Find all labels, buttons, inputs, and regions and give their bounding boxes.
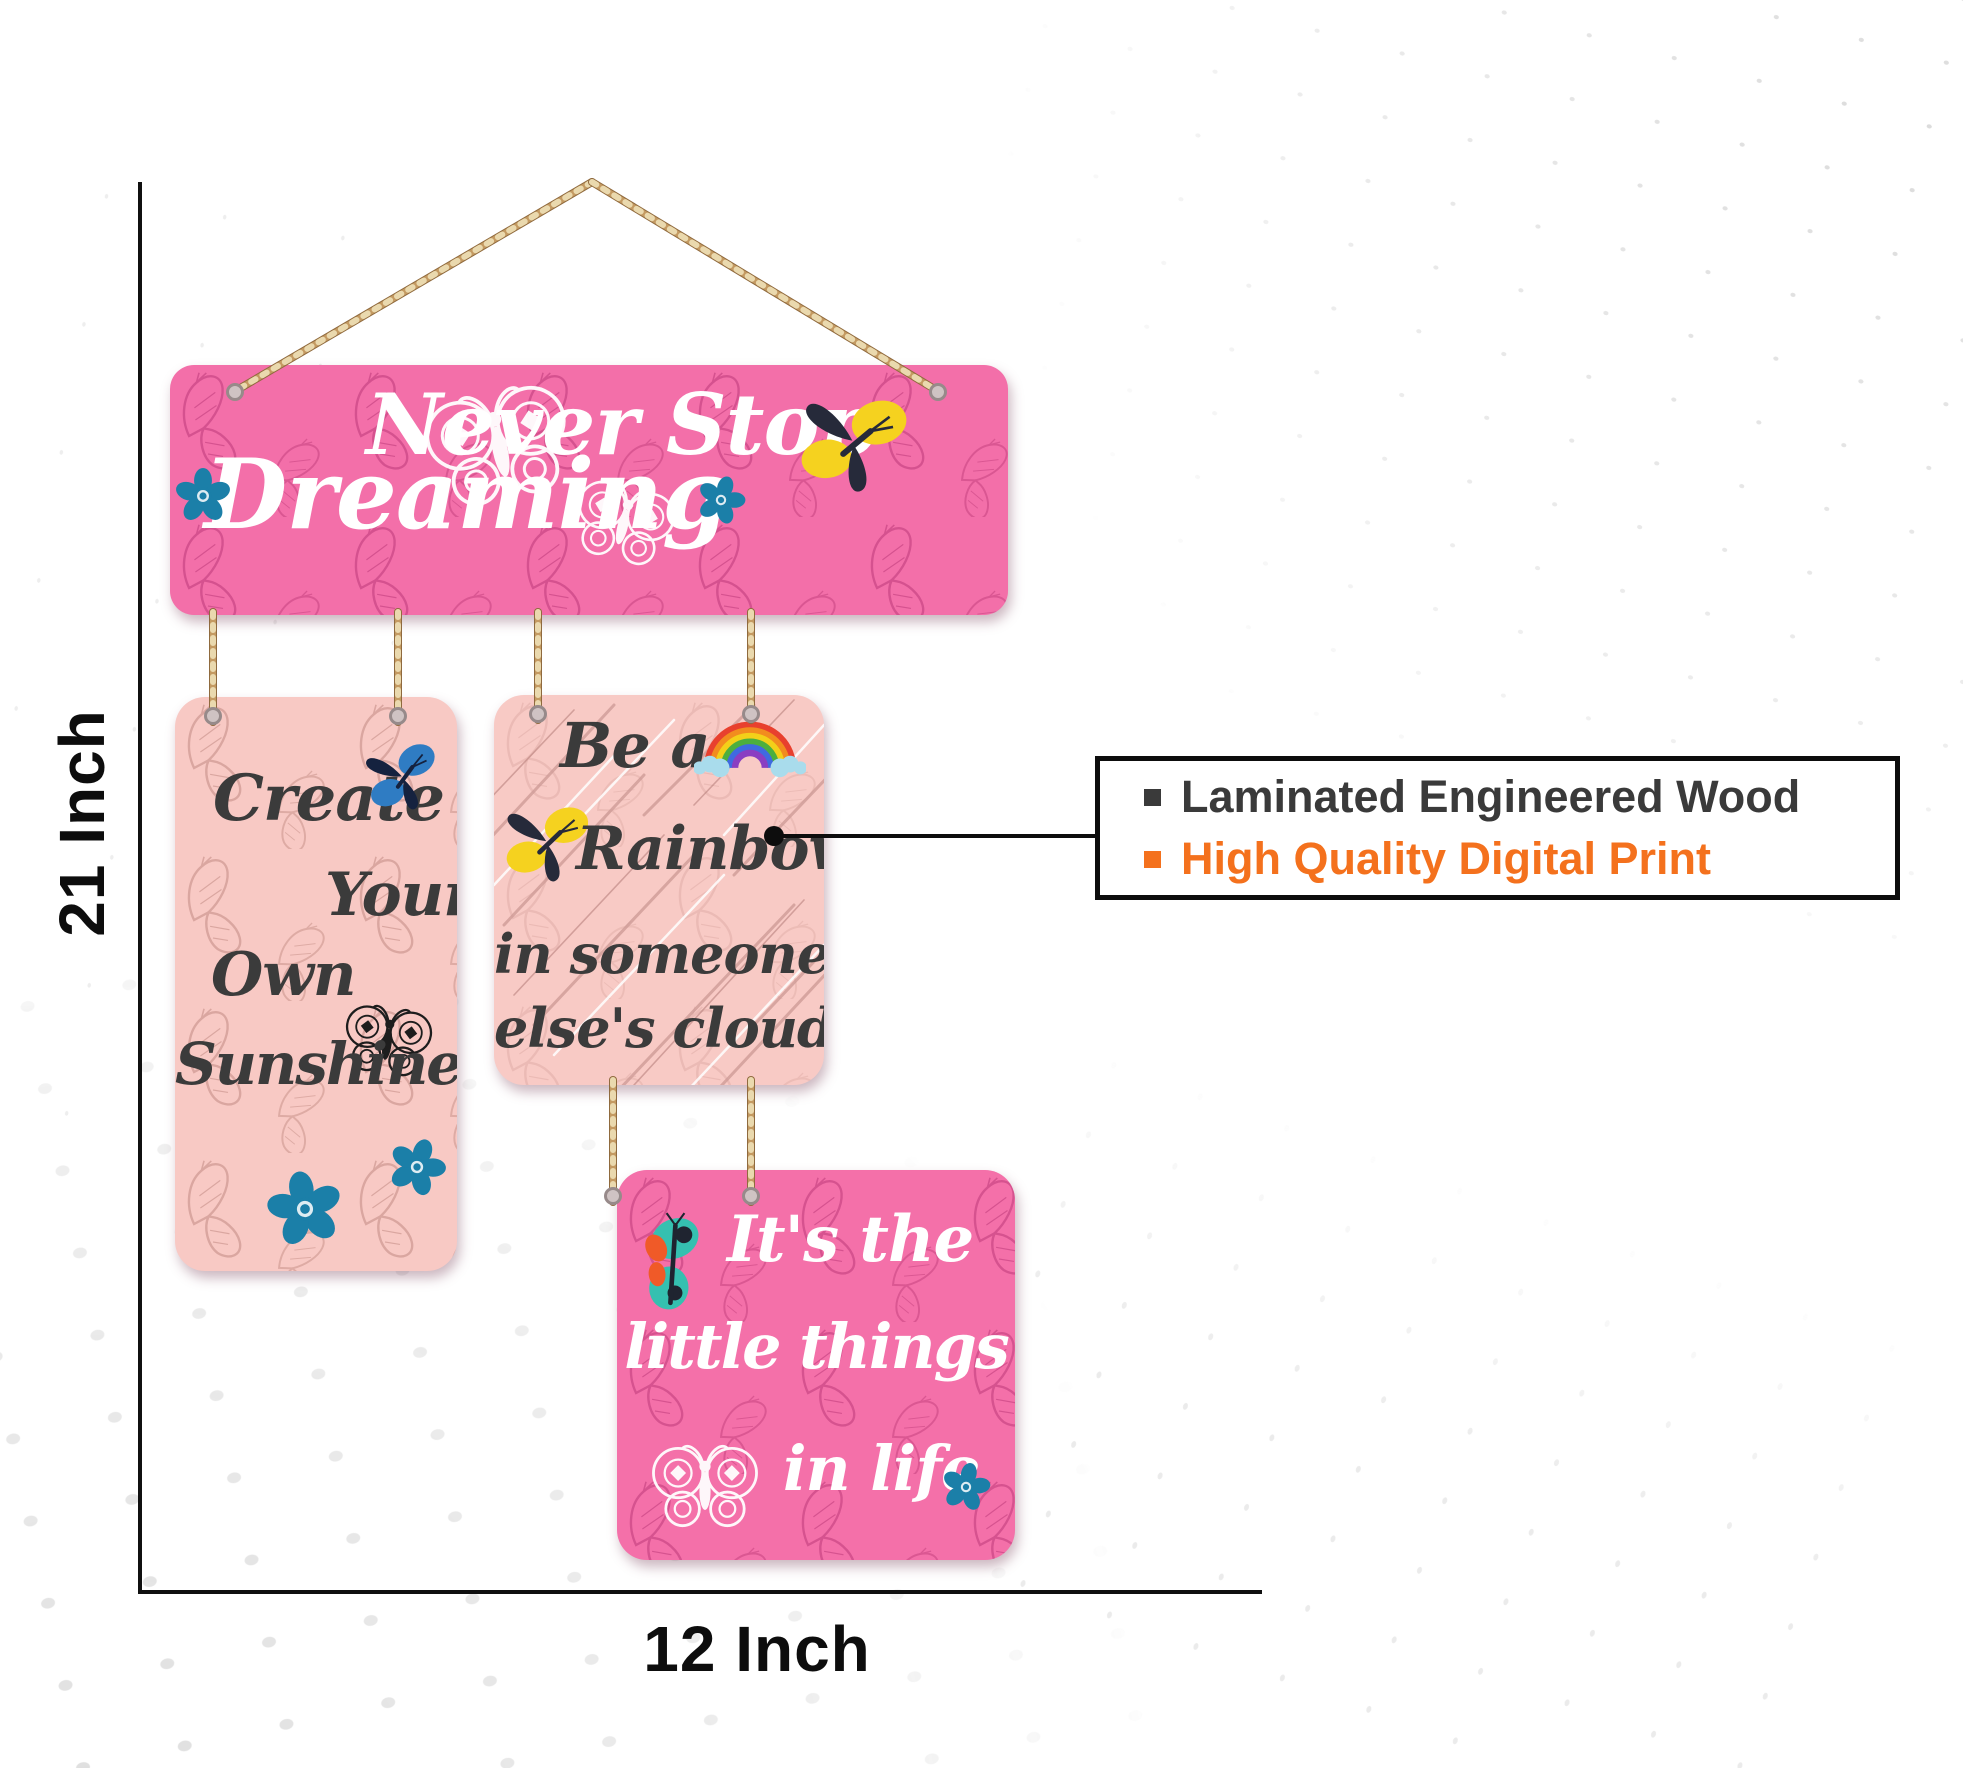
callout-item-laminated-wood: Laminated Engineered Wood bbox=[1144, 771, 1895, 823]
width-dimension-line bbox=[138, 1590, 1262, 1594]
quote-left-line4: Sunshine bbox=[175, 1035, 457, 1093]
halftone-dots-bottom-right bbox=[871, 1015, 1929, 1768]
callout-box: Laminated Engineered Wood High Quality D… bbox=[1095, 756, 1900, 900]
rope-hole bbox=[742, 1187, 760, 1205]
callout-item-label: Laminated Engineered Wood bbox=[1181, 771, 1800, 823]
rope-hole bbox=[389, 707, 407, 725]
rope-hole bbox=[226, 383, 244, 401]
height-dimension-line bbox=[138, 182, 142, 1594]
quote-left-line2: Your bbox=[325, 865, 457, 925]
panel-little-things-in-life: It's the little things in life bbox=[617, 1170, 1015, 1560]
teal-orange-butterfly-icon bbox=[631, 1206, 715, 1324]
rope-hole bbox=[742, 705, 760, 723]
rope-hole bbox=[204, 707, 222, 725]
quote-bottom-line1: It's the bbox=[727, 1208, 973, 1272]
quote-right-line3: in someone bbox=[494, 927, 824, 981]
yellow-black-butterfly-icon bbox=[792, 383, 912, 503]
blue-flower-icon bbox=[172, 465, 234, 527]
quote-right-line4: else's cloud bbox=[494, 1001, 824, 1055]
quote-right-line2: Rainbow bbox=[576, 819, 824, 879]
rope-hole bbox=[604, 1187, 622, 1205]
blue-butterfly-icon bbox=[361, 737, 443, 819]
white-lace-butterfly-icon bbox=[635, 1426, 775, 1538]
panel-create-your-own-sunshine: Create Your Own Sunshine bbox=[175, 697, 457, 1271]
blue-flower-icon bbox=[939, 1460, 993, 1514]
width-label: 12 Inch bbox=[507, 1612, 1007, 1686]
square-bullet-icon bbox=[1144, 789, 1161, 806]
white-lace-butterfly-icon bbox=[562, 467, 687, 571]
callout-item-label: High Quality Digital Print bbox=[1181, 833, 1711, 885]
rope-hole bbox=[529, 705, 547, 723]
callout-item-digital-print: High Quality Digital Print bbox=[1144, 833, 1895, 885]
quote-bottom-line2: little things bbox=[617, 1316, 1015, 1378]
blue-flower-icon bbox=[385, 1135, 449, 1199]
height-label: 21 Inch bbox=[45, 673, 119, 973]
product-image: 21 Inch 12 Inch Never Stop Dreaming Crea… bbox=[0, 0, 1963, 1768]
callout-connector-line bbox=[772, 834, 1095, 838]
square-bullet-icon bbox=[1144, 851, 1161, 868]
quote-right-line1: Be a bbox=[560, 715, 710, 777]
blue-flower-icon bbox=[263, 1167, 347, 1251]
rope-hole bbox=[929, 383, 947, 401]
blue-flower-icon bbox=[694, 473, 748, 527]
panel-be-a-rainbow: Be a Rainbow in someone else's cloud bbox=[494, 695, 824, 1085]
panel-never-stop-dreaming: Never Stop Dreaming bbox=[170, 365, 1008, 615]
